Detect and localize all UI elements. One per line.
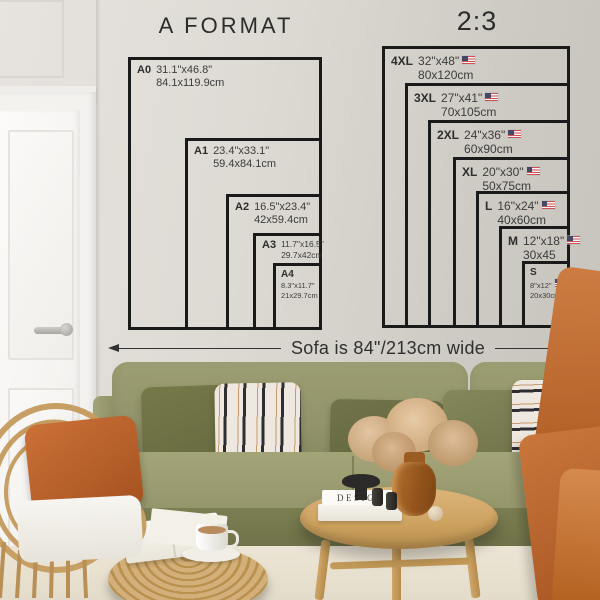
size-label: 3XL27"x41"70x105cm — [408, 86, 567, 119]
us-flag-icon — [485, 93, 498, 101]
size-label: 2XL24"x36"60x90cm — [431, 123, 567, 156]
candle-holder — [386, 492, 397, 510]
size-code: XL — [462, 165, 477, 179]
size-cm: 60x90cm — [464, 142, 513, 156]
size-code: A1 — [194, 145, 208, 158]
wall-molding-panel — [0, 0, 64, 78]
table-leg — [392, 544, 401, 600]
striped-pillow — [214, 382, 301, 462]
size-cm: 84.1x119.9cm — [156, 77, 224, 89]
us-flag-icon — [527, 167, 540, 175]
us-flag-icon — [567, 236, 580, 244]
size-dimensions: 12"x18"30x45 — [523, 234, 580, 262]
wood-ball — [428, 506, 443, 521]
size-inches: 32"x48" — [418, 54, 459, 68]
door-handle-rose — [60, 323, 73, 336]
size-label: A123.4"x33.1"59.4x84.1cm — [188, 141, 319, 171]
size-dimensions: 27"x41"70x105cm — [441, 91, 498, 119]
dried-flowers — [428, 420, 478, 466]
size-dimensions: 32"x48"80x120cm — [418, 54, 475, 82]
size-label: A031.1"x46.8"84.1x119.9cm — [131, 60, 319, 90]
size-code: A3 — [262, 239, 276, 252]
size-dimensions: 24"x36"60x90cm — [464, 128, 521, 156]
black-bowl — [342, 474, 380, 488]
coffee-cup — [196, 524, 228, 550]
wall-corner-shadow — [96, 0, 101, 460]
size-code: S — [530, 267, 537, 279]
size-dimensions: 16"x24"40x60cm — [497, 199, 554, 227]
size-cm: 70x105cm — [441, 105, 496, 119]
size-code: A2 — [235, 201, 249, 214]
chair-seat-cushion — [16, 495, 143, 563]
size-cm: 80x120cm — [418, 68, 473, 82]
size-cm: 59.4x84.1cm — [213, 158, 276, 170]
size-cm: 29.7x42cm — [281, 250, 323, 260]
size-dimensions: 20"x30"50x75cm — [482, 165, 539, 193]
size-label: 4XL32"x48"80x120cm — [385, 49, 567, 82]
size-inches: 8"x12" — [530, 281, 552, 290]
sofa-width-annotation: Sofa is 84"/213cm wide — [108, 338, 600, 358]
arrow-line — [119, 348, 281, 349]
size-inches: 27"x41" — [441, 91, 482, 105]
size-inches: 23.4"x33.1" — [213, 145, 269, 157]
size-code: L — [485, 199, 492, 213]
size-code: 2XL — [437, 128, 459, 142]
throw-blanket — [551, 468, 600, 600]
us-flag-icon — [542, 201, 555, 209]
size-inches: 11.7"x16.5" — [281, 239, 324, 249]
size-inches: 8.3"x11.7" — [281, 281, 315, 290]
candle-holder — [372, 488, 383, 506]
size-label: L16"x24"40x60cm — [479, 194, 567, 227]
size-label: XL20"x30"50x75cm — [456, 160, 567, 193]
size-dimensions: 23.4"x33.1"59.4x84.1cm — [213, 145, 276, 171]
size-inches: 16.5"x23.4" — [254, 201, 310, 213]
us-flag-icon — [508, 130, 521, 138]
size-label: A48.3"x11.7"21x29.7cm — [276, 266, 319, 300]
sofa-width-label: Sofa is 84"/213cm wide — [281, 338, 495, 359]
size-label: A216.5"x23.4"42x59.4cm — [229, 197, 319, 227]
size-inches: 20"x30" — [482, 165, 523, 179]
size-inches: 16"x24" — [497, 199, 538, 213]
us-flag-icon — [462, 56, 475, 64]
living-room-size-guide: A FORMAT 2:3 A031.1"x46.8"84.1x119.9cmA1… — [0, 0, 600, 600]
size-code: 4XL — [391, 54, 413, 68]
size-code: M — [508, 234, 518, 248]
a-format-rect-A4: A48.3"x11.7"21x29.7cm — [273, 263, 322, 330]
size-dimensions: 11.7"x16.5"29.7x42cm — [281, 239, 324, 260]
size-inches: 31.1"x46.8" — [156, 64, 212, 76]
size-dimensions: 31.1"x46.8"84.1x119.9cm — [156, 64, 224, 90]
size-label: M12"x18"30x45 — [502, 229, 567, 262]
size-cm: 42x59.4cm — [254, 214, 308, 226]
size-label: A311.7"x16.5"29.7x42cm — [256, 236, 319, 260]
size-code: 3XL — [414, 91, 436, 105]
size-code: A0 — [137, 64, 151, 77]
arrow-left-icon — [108, 344, 119, 352]
ratio-title: 2:3 — [457, 6, 498, 37]
size-dimensions: 16.5"x23.4"42x59.4cm — [254, 201, 310, 227]
size-cm: 21x29.7cm — [281, 291, 318, 300]
size-inches: 12"x18" — [523, 234, 564, 248]
size-dimensions: 8.3"x11.7"21x29.7cm — [281, 281, 318, 301]
a-format-title: A FORMAT — [159, 13, 294, 39]
size-inches: 24"x36" — [464, 128, 505, 142]
size-code: A4 — [281, 269, 294, 281]
